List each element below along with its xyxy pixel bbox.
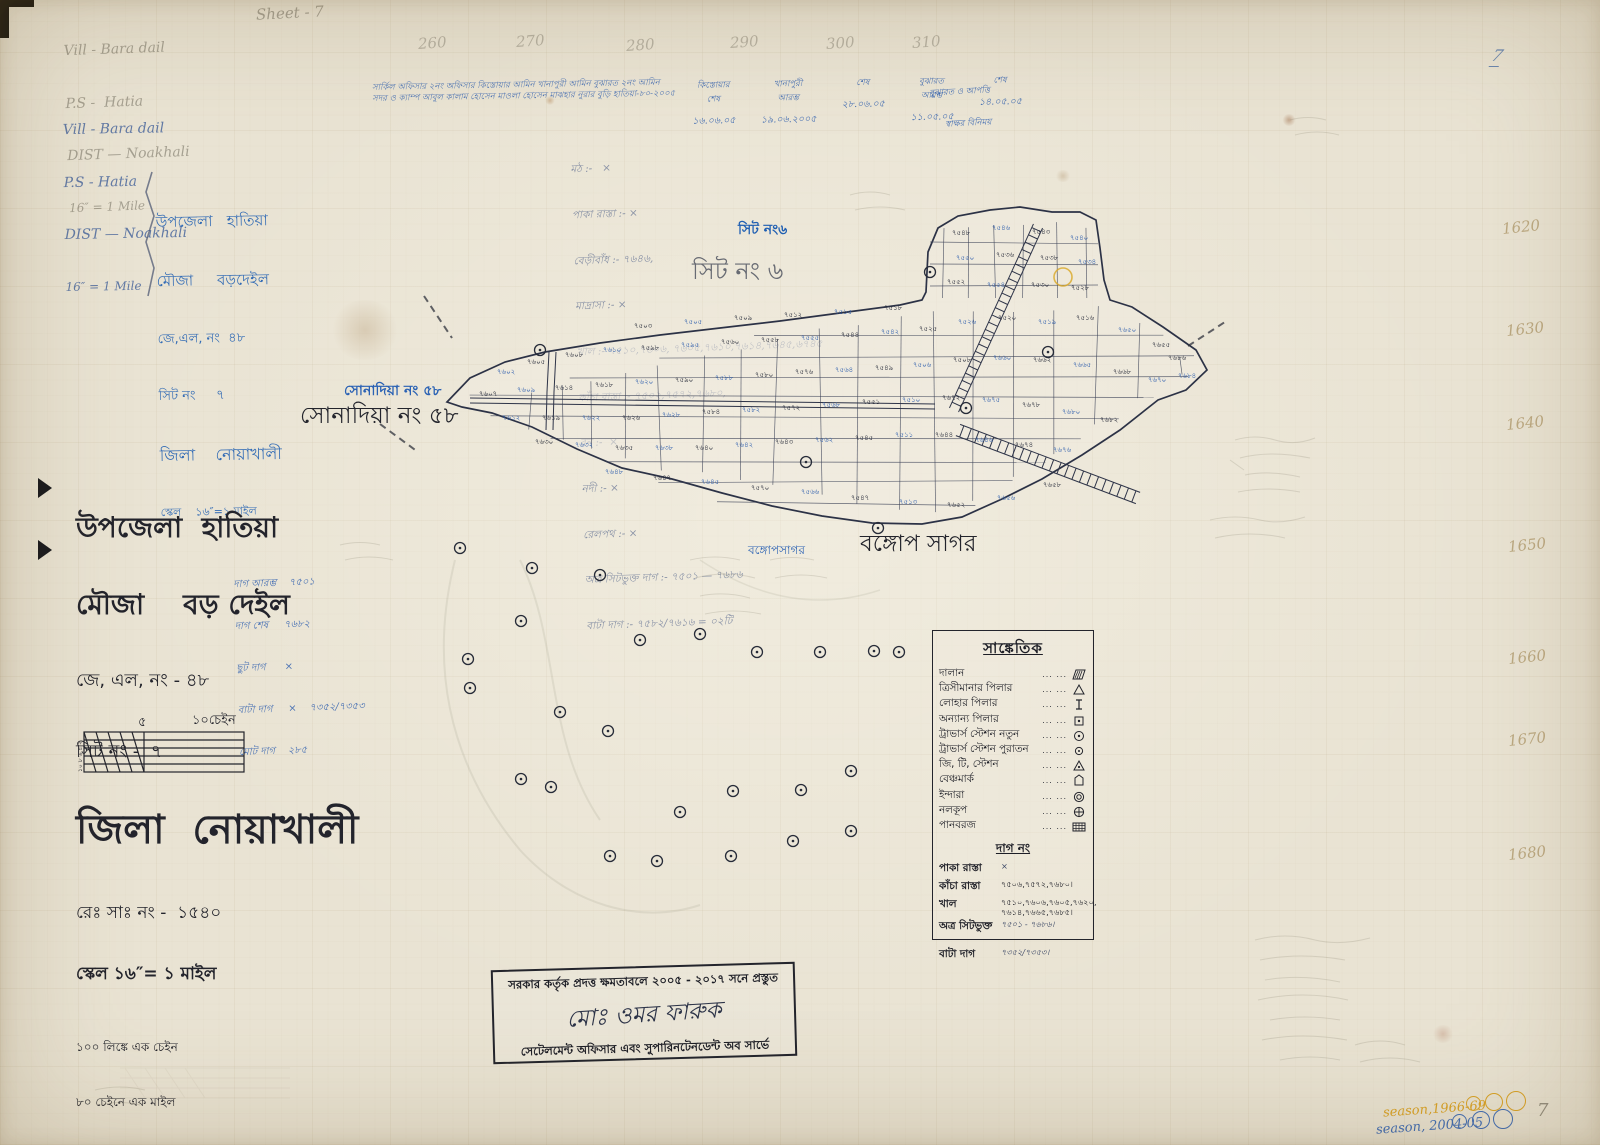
svg-text:৭৫১৯: ৭৫১৯ bbox=[1038, 318, 1057, 326]
svg-text:৭৫২৫: ৭৫২৫ bbox=[919, 325, 937, 333]
other-pillar-square-dot-icon bbox=[1071, 714, 1087, 727]
svg-text:৭৬৮০: ৭৬৮০ bbox=[1062, 408, 1080, 416]
dag-value: × bbox=[1001, 861, 1087, 878]
legend-title: সাঙ্কেতিক bbox=[933, 637, 1093, 662]
svg-text:৭৫১১: ৭৫১১ bbox=[895, 431, 913, 439]
svg-text:৭৫৪৭: ৭৫৪৭ bbox=[851, 494, 869, 502]
title-district: জিলা নোয়াখালী bbox=[76, 805, 358, 855]
svg-text:৭৬৭৮: ৭৬৭৮ bbox=[1022, 401, 1041, 409]
svg-text:৭৫৮০: ৭৫৮০ bbox=[755, 371, 773, 379]
svg-text:৭৫৯৮: ৭৫৯৮ bbox=[641, 344, 660, 352]
legend-dots: ... ... bbox=[964, 792, 1071, 801]
chain-note-2: ৮০ চেইনে এক মাইল bbox=[76, 1095, 358, 1110]
benchmark-flag-icon bbox=[1071, 774, 1087, 787]
svg-text:৭৫৭৬: ৭৫৭৬ bbox=[795, 368, 814, 376]
svg-text:৭৫৫০: ৭৫৫০ bbox=[956, 254, 974, 262]
page-number-bottom: 7 bbox=[1537, 1100, 1548, 1123]
svg-text:৭৫৬৮: ৭৫৬৮ bbox=[822, 401, 841, 409]
gt-station-triangle-dot-icon bbox=[1071, 759, 1087, 772]
legend-dots: ... ... bbox=[997, 700, 1071, 709]
svg-text:৭৫৩৪: ৭৫৩৪ bbox=[1078, 258, 1096, 266]
blue-annotation: দাগ আরম্ভ ৭৫০১ bbox=[233, 574, 360, 592]
svg-text:৭৬৫৬: ৭৬৫৬ bbox=[997, 494, 1016, 502]
title-upazila: উপজেলা হাতিয়া bbox=[76, 510, 358, 545]
traverse-station-old-icon bbox=[1071, 744, 1087, 757]
title-scale: স্কেল ১৬″= ১ মাইল bbox=[76, 964, 358, 985]
svg-text:৭৫৫৪: ৭৫৫৪ bbox=[987, 281, 1005, 289]
dag-row: বাটা দাগ ৭৩৫২/৭৩৫৩। bbox=[933, 946, 1093, 964]
svg-text:৭৬৩৫: ৭৬৩৫ bbox=[615, 444, 633, 452]
season-circle-orange bbox=[1466, 1096, 1481, 1111]
svg-text:৭৬০৯: ৭৬০৯ bbox=[517, 386, 536, 394]
season-circle-blue bbox=[1452, 1114, 1467, 1129]
margin-number-right: 1620 bbox=[1501, 216, 1541, 239]
season-circle-orange bbox=[1506, 1091, 1526, 1111]
margin-number-right: 1650 bbox=[1507, 534, 1547, 557]
tubewell-circle-cross-icon bbox=[1071, 805, 1087, 818]
svg-text:৭৬১৯: ৭৬১৯ bbox=[542, 414, 561, 422]
iron-pillar-ibeam-icon bbox=[1071, 698, 1087, 711]
bay-label-black: বঙ্গোপ সাগর bbox=[860, 530, 976, 559]
margin-number-right: 1630 bbox=[1505, 318, 1545, 341]
legend-dots: ... ... bbox=[976, 822, 1071, 831]
dag-row: অত্র সিটভুক্ত ৭৫০১ - ৭৬৮৬। bbox=[933, 918, 1093, 936]
svg-text:৭৫১৬: ৭৫১৬ bbox=[1076, 314, 1095, 322]
margin-number-right: 1680 bbox=[1507, 842, 1547, 865]
svg-text:৭৫৫২: ৭৫৫২ bbox=[947, 278, 965, 286]
boundary-pillar-triangle-icon bbox=[1071, 683, 1087, 696]
legend-row: নলকূপ ... ... bbox=[933, 804, 1093, 819]
svg-text:৭৫৪৫: ৭৫৪৫ bbox=[855, 434, 873, 442]
legend-row: ট্রাভার্স স্টেশন নতুন ... ... bbox=[933, 728, 1093, 743]
svg-text:৭৬৪২: ৭৬৪২ bbox=[735, 441, 753, 449]
svg-text:৭৬৬০: ৭৬৬০ bbox=[993, 354, 1011, 362]
svg-text:৭৬৭০: ৭৬৭০ bbox=[1148, 376, 1166, 384]
bay-label-blue: বঙ্গোপসাগর bbox=[748, 543, 805, 558]
svg-text:৭৫৫১: ৭৫৫১ bbox=[862, 398, 880, 406]
dag-value: ৭৩৫২/৭৩৫৩। bbox=[1001, 947, 1087, 964]
margin-number-right: 1670 bbox=[1507, 728, 1547, 751]
svg-text:৭৬৪০: ৭৬৪০ bbox=[695, 444, 713, 452]
dag-label: বাটা দাগ bbox=[939, 947, 1001, 964]
legend-dots: ... ... bbox=[967, 807, 1071, 816]
svg-text:৭৬৮৪: ৭৬৮৪ bbox=[1178, 372, 1196, 380]
svg-text:৭৬১২: ৭৬১২ bbox=[502, 414, 520, 422]
svg-text:৭৫১০: ৭৫১০ bbox=[902, 396, 920, 404]
svg-text:৭৬০২: ৭৬০২ bbox=[497, 368, 515, 376]
svg-text:৭৬৬৮: ৭৬৬৮ bbox=[1113, 368, 1132, 376]
legend-row: ট্রাভার্স স্টেশন পুরাতন ... ... bbox=[933, 743, 1093, 758]
margin-arrow-1 bbox=[36, 478, 56, 500]
scale-bar-left-digits: ১০ ৮ ৬ ৪ ২ bbox=[77, 741, 84, 772]
svg-text:৭৬১৮: ৭৬১৮ bbox=[595, 381, 614, 389]
svg-text:৭৫৬৪: ৭৫৬৪ bbox=[835, 366, 853, 374]
scale-bar: ৫ ১০চেইন ১০ ৮ ৬ ৪ ২ bbox=[70, 700, 270, 780]
svg-text:৭৬৫২: ৭৬৫২ bbox=[947, 501, 965, 509]
legend-dots: ... ... bbox=[1019, 731, 1071, 740]
margin-arrow-2 bbox=[36, 540, 56, 562]
svg-text:৭৫৪৩: ৭৫৪৩ bbox=[1032, 228, 1051, 236]
scale-bar-mid-label: ৫ bbox=[138, 715, 146, 730]
dag-row: খাল ৭৫১০,৭৬০৬,৭৬০৫,৭৬২০, ৭৬১৪,৭৬৬৫,৭৬৮৫। bbox=[933, 896, 1093, 918]
svg-text:৭৬৪৮: ৭৬৪৮ bbox=[605, 468, 624, 476]
dag-label: খাল bbox=[939, 897, 1001, 918]
svg-text:৭৬১০: ৭৬১০ bbox=[603, 346, 621, 354]
svg-text:৭৬৫৮: ৭৬৫৮ bbox=[1043, 481, 1062, 489]
dag-value: ৭৫০১ - ৭৬৮৬। bbox=[1001, 919, 1087, 936]
svg-text:৭৬১৪: ৭৬১৪ bbox=[555, 384, 573, 392]
svg-text:৭৬৮৬: ৭৬৮৬ bbox=[1168, 354, 1187, 362]
legend-row: দালান ... ... bbox=[933, 667, 1093, 682]
svg-text:৭৫৯০: ৭৫৯০ bbox=[675, 376, 693, 384]
season-circle-blue bbox=[1472, 1111, 1490, 1129]
legend-box: সাঙ্কেতিক দালান ... ... ত্রিসীমানার পিলা… bbox=[932, 630, 1094, 940]
dag-label: পাকা রাস্তা bbox=[939, 861, 1001, 878]
building-hatch-icon bbox=[1071, 668, 1087, 681]
legend-row: অন্যান্য পিলার ... ... bbox=[933, 713, 1093, 728]
legend-row: ইন্দারা ... ... bbox=[933, 789, 1093, 804]
svg-text:৭৫১৫: ৭৫১৫ bbox=[834, 308, 852, 316]
svg-text:৭৬৮২: ৭৬৮২ bbox=[1100, 416, 1118, 424]
season-circle-blue bbox=[1493, 1109, 1513, 1129]
legend-dots: ... ... bbox=[974, 776, 1071, 785]
svg-text:৭৬২৬: ৭৬২৬ bbox=[622, 414, 641, 422]
svg-text:৭৫৫৮: ৭৫৫৮ bbox=[761, 336, 780, 344]
dag-label: অত্র সিটভুক্ত bbox=[939, 919, 1001, 936]
svg-text:৭৫১২: ৭৫১২ bbox=[784, 311, 802, 319]
well-double-circle-icon bbox=[1071, 790, 1087, 803]
traverse-station-new-icon bbox=[1071, 729, 1087, 742]
svg-text:৭৫২৬: ৭৫২৬ bbox=[958, 318, 977, 326]
dag-value: ৭৫১০,৭৬০৬,৭৬০৫,৭৬২০, ৭৬১৪,৭৬৬৫,৭৬৮৫। bbox=[1001, 897, 1097, 918]
svg-text:৭৬০৫: ৭৬০৫ bbox=[527, 358, 545, 366]
svg-text:৭৬৭২: ৭৬৭২ bbox=[942, 394, 960, 402]
blue-annotation: দাগ শেষ ৭৬৮২ bbox=[235, 616, 362, 634]
svg-text:৭৫৪৬: ৭৫৪৬ bbox=[992, 224, 1011, 232]
legend-row: বেঞ্চমার্ক ... ... bbox=[933, 773, 1093, 788]
legend-dots: ... ... bbox=[999, 716, 1071, 725]
svg-text:৭৬২২: ৭৬২২ bbox=[582, 414, 600, 422]
official-stamp-box: সরকার কর্তৃক প্রদত্ত ক্ষমতাবলে ২০০৫ - ২০… bbox=[491, 962, 798, 1064]
blue-annotation: ছুট দাগ × bbox=[236, 658, 363, 676]
title-reg-no: রেঃ সাঃ নং - ১৫৪০ bbox=[76, 903, 358, 924]
svg-text:৭৬৫৫: ৭৬৫৫ bbox=[1152, 341, 1170, 349]
svg-text:৭৫৩৮: ৭৫৩৮ bbox=[1040, 254, 1059, 262]
svg-text:৭৫০৫: ৭৫০৫ bbox=[684, 318, 702, 326]
svg-text:৭৬৬৫: ৭৬৬৫ bbox=[1073, 361, 1091, 369]
legend-dots: ... ... bbox=[964, 670, 1071, 679]
svg-text:৭৫৬০: ৭৫৬০ bbox=[721, 338, 739, 346]
legend-row: ত্রিসীমানার পিলার ... ... bbox=[933, 682, 1093, 697]
dag-row: পাকা রাস্তা × bbox=[933, 860, 1093, 878]
svg-text:৭৫২৮: ৭৫২৮ bbox=[1071, 284, 1090, 292]
svg-text:৭৫৯৫: ৭৫৯৫ bbox=[681, 341, 699, 349]
island-outline bbox=[447, 207, 1207, 524]
dag-value: ৭৫০৬,৭৫৭২,৭৬৮০। bbox=[1001, 879, 1087, 896]
svg-text:৭৬২০: ৭৬২০ bbox=[635, 378, 653, 386]
svg-text:৭৫৮৮: ৭৫৮৮ bbox=[715, 374, 734, 382]
betel-crosshatch-icon bbox=[1071, 820, 1087, 833]
svg-text:৭৫৪২: ৭৫৪২ bbox=[881, 328, 899, 336]
svg-text:৭৫০৬: ৭৫০৬ bbox=[913, 361, 932, 369]
svg-text:৭৫৮২: ৭৫৮২ bbox=[742, 406, 760, 414]
legend-row: জি, টি, স্টেশন ... ... bbox=[933, 758, 1093, 773]
svg-text:৭৫১৩: ৭৫১৩ bbox=[899, 498, 918, 506]
legend-row: পানবরজ ... ... bbox=[933, 819, 1093, 834]
svg-text:৭৬৪৪: ৭৬৪৪ bbox=[935, 431, 953, 439]
svg-text:৭৬৪৬: ৭৬৪৬ bbox=[975, 436, 994, 444]
dag-label: কাঁচা রাস্তা bbox=[939, 879, 1001, 896]
svg-text:৭৬৩০: ৭৬৩০ bbox=[535, 438, 553, 446]
margin-number-right: 1660 bbox=[1507, 646, 1547, 669]
svg-text:৭৫২০: ৭৫২০ bbox=[998, 314, 1016, 322]
svg-text:৭৬৭৪: ৭৬৭৪ bbox=[1015, 441, 1033, 449]
svg-text:৭৬০৭: ৭৬০৭ bbox=[479, 390, 497, 398]
dag-section-title: দাগ নং bbox=[933, 840, 1093, 860]
dag-row: কাঁচা রাস্তা ৭৫০৬,৭৫৭২,৭৬৮০। bbox=[933, 878, 1093, 896]
svg-text:৭৫৬৬: ৭৫৬৬ bbox=[801, 488, 820, 496]
legend-dots: ... ... bbox=[999, 761, 1071, 770]
svg-text:৭৬৩২: ৭৬৩২ bbox=[575, 441, 593, 449]
svg-text:৭৬৪৫: ৭৬৪৫ bbox=[701, 478, 719, 486]
chain-note-1: ১০০ লিঙ্কে এক চেইন bbox=[76, 1040, 358, 1055]
legend-dots: ... ... bbox=[1029, 746, 1071, 755]
sonadia-label-blue: সোনাদিয়া নং ৫৮ bbox=[344, 383, 441, 401]
svg-text:৭৫০৩: ৭৫০৩ bbox=[634, 322, 653, 330]
svg-text:৭৬৪৭: ৭৬৪৭ bbox=[653, 474, 671, 482]
svg-text:৭৫৭০: ৭৫৭০ bbox=[751, 484, 769, 492]
svg-text:৭৫৬২: ৭৫৬২ bbox=[815, 436, 833, 444]
svg-text:৭৫১৮: ৭৫১৮ bbox=[884, 304, 903, 312]
legend-label: পানবরজ bbox=[939, 818, 976, 835]
sonadia-label-black: সোনাদিয়া নং ৫৮ bbox=[300, 402, 459, 431]
svg-text:৭৫৪৮: ৭৫৪৮ bbox=[952, 229, 971, 237]
svg-text:৭৬৭৫: ৭৬৭৫ bbox=[982, 396, 1000, 404]
svg-text:৭৬০৮: ৭৬০৮ bbox=[565, 351, 584, 359]
svg-text:৭৬৫০: ৭৬৫০ bbox=[1118, 326, 1136, 334]
svg-text:৭৫০৮: ৭৫০৮ bbox=[953, 356, 972, 364]
scale-bar-right-label: ১০চেইন bbox=[192, 712, 236, 728]
svg-text:৭৬৭৬: ৭৬৭৬ bbox=[1053, 446, 1072, 454]
svg-text:৭৫০৯: ৭৫০৯ bbox=[734, 314, 753, 322]
svg-text:৭৬২৮: ৭৬২৮ bbox=[662, 411, 681, 419]
svg-text:৭৫৩০: ৭৫৩০ bbox=[1031, 281, 1049, 289]
svg-text:৭৫৪৪: ৭৫৪৪ bbox=[841, 331, 859, 339]
svg-text:৭৫৭২: ৭৫৭২ bbox=[782, 404, 800, 412]
svg-text:৭৫৮৪: ৭৫৮৪ bbox=[702, 408, 720, 416]
svg-text:৭৫৪৯: ৭৫৪৯ bbox=[875, 364, 894, 372]
svg-text:৭৬৩৮: ৭৬৩৮ bbox=[655, 444, 674, 452]
svg-text:৭৬৪৩: ৭৬৪৩ bbox=[775, 438, 794, 446]
margin-number-right: 1640 bbox=[1505, 412, 1545, 435]
svg-text:৭৫৪০: ৭৫৪০ bbox=[1070, 234, 1088, 242]
officer-signature: মোঃ ওমর ফারুক bbox=[493, 987, 795, 1045]
svg-text:৭৫৩৬: ৭৫৩৬ bbox=[996, 251, 1015, 259]
legend-row: লোহার পিলার ... ... bbox=[933, 697, 1093, 712]
legend-dots: ... ... bbox=[1012, 685, 1071, 694]
svg-text:৭৫৫৫: ৭৫৫৫ bbox=[801, 334, 819, 342]
